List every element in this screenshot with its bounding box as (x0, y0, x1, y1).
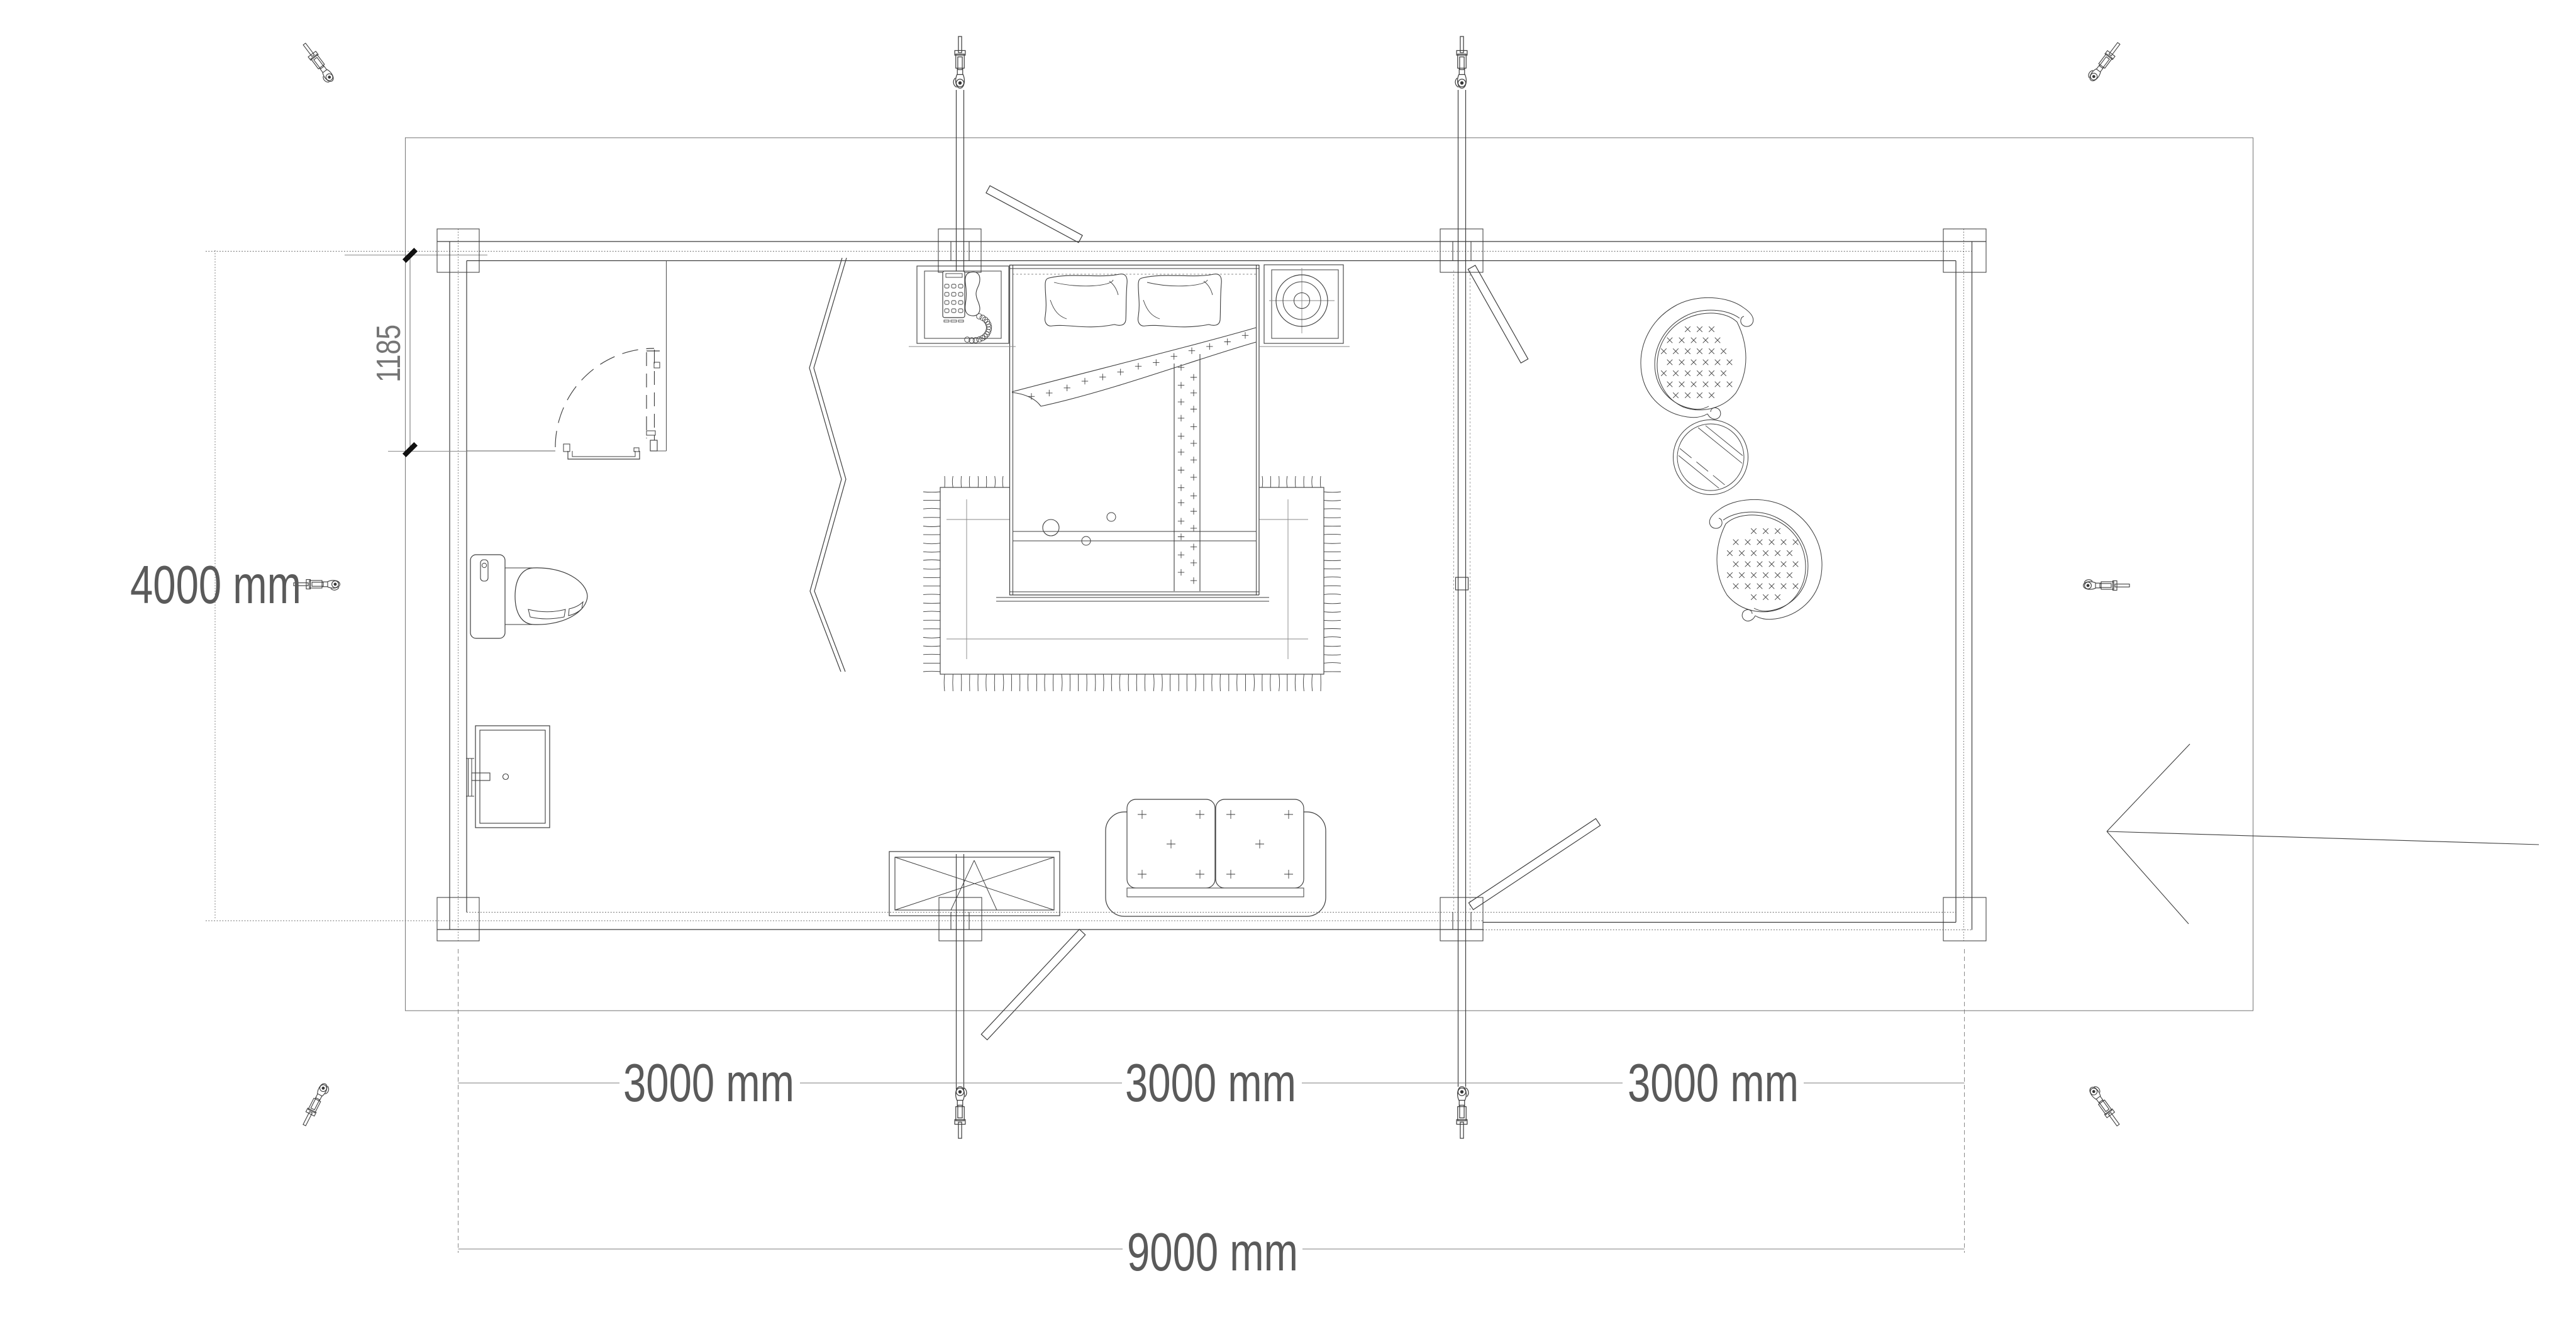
svg-text:3000 mm: 3000 mm (1628, 1053, 1799, 1113)
svg-text:1185: 1185 (370, 325, 408, 382)
svg-text:9000 mm: 9000 mm (1127, 1223, 1298, 1282)
svg-text:3000 mm: 3000 mm (623, 1053, 794, 1113)
svg-text:4000 mm: 4000 mm (130, 555, 301, 615)
svg-text:3000 mm: 3000 mm (1125, 1053, 1296, 1113)
